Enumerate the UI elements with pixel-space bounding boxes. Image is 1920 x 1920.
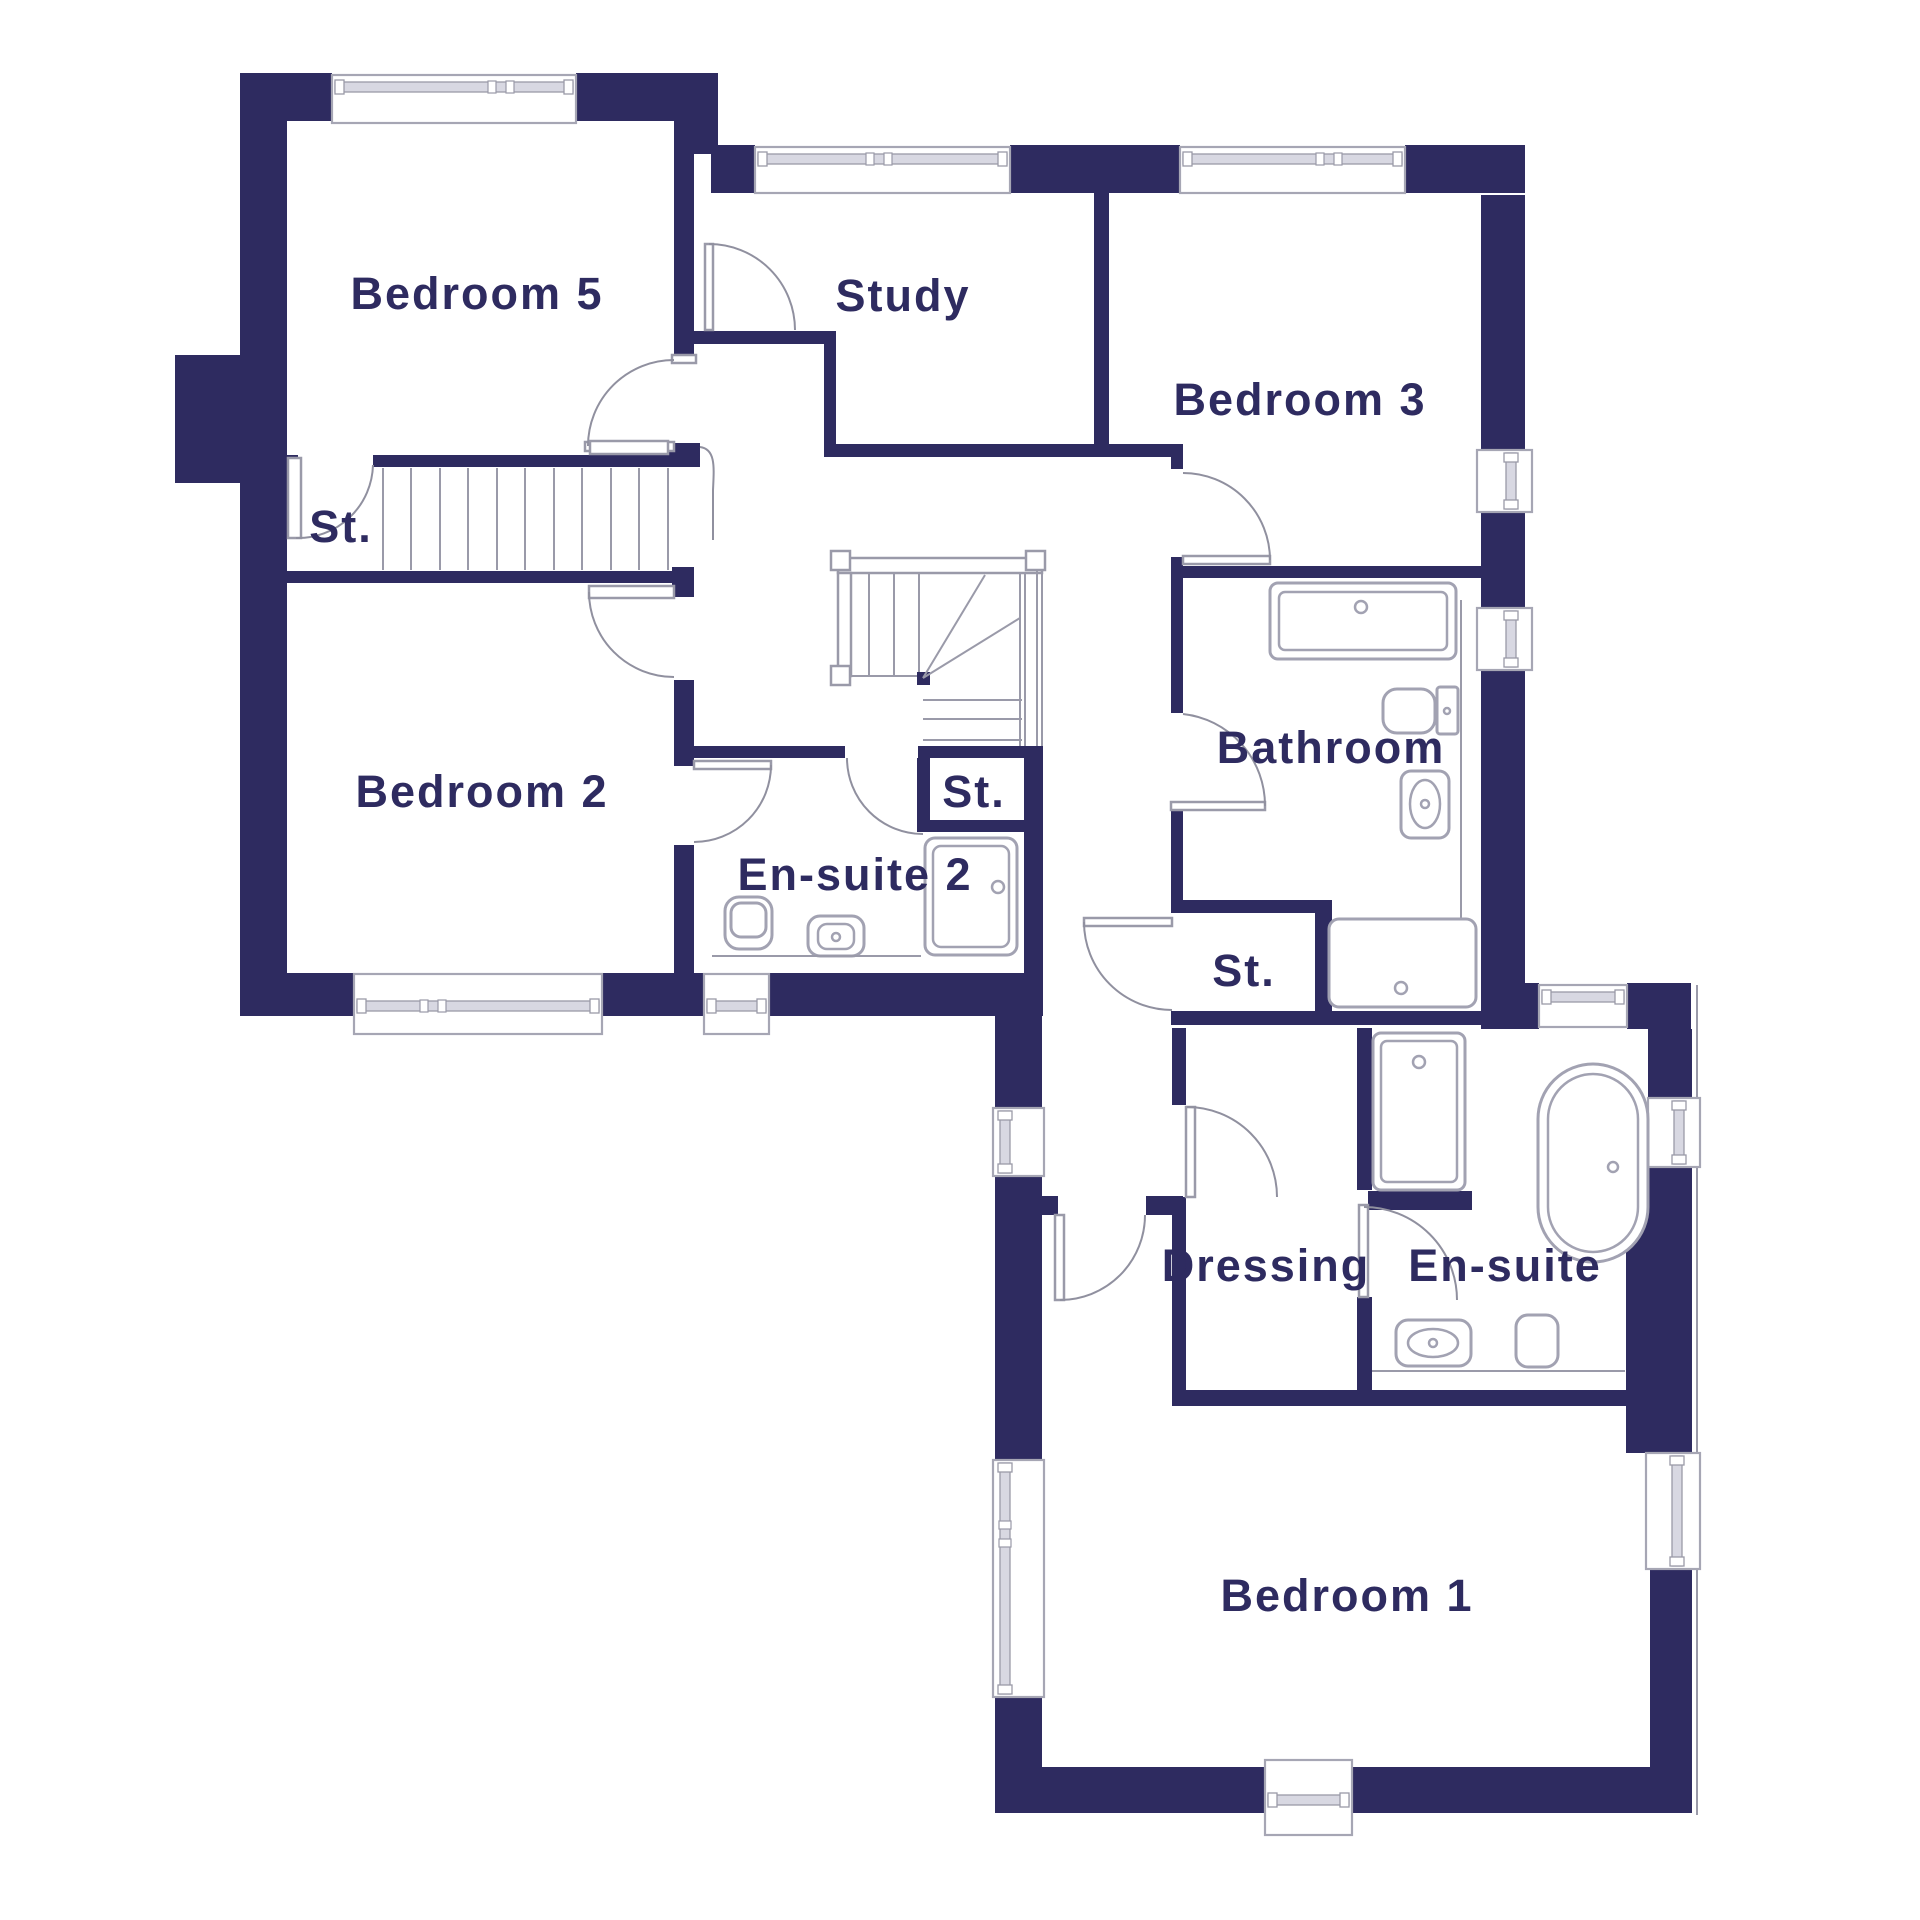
- svg-text:St.: St.: [942, 766, 1006, 817]
- svg-text:Study: Study: [835, 270, 970, 321]
- svg-text:St.: St.: [309, 501, 373, 552]
- svg-text:En-suite: En-suite: [1408, 1240, 1602, 1291]
- svg-text:Dressing: Dressing: [1162, 1240, 1371, 1291]
- svg-text:En-suite 2: En-suite 2: [737, 849, 972, 900]
- svg-text:Bathroom: Bathroom: [1217, 722, 1446, 773]
- svg-text:Bedroom 5: Bedroom 5: [350, 268, 603, 319]
- svg-text:Bedroom 3: Bedroom 3: [1173, 374, 1426, 425]
- svg-text:St.: St.: [1212, 945, 1276, 996]
- svg-text:Bedroom 2: Bedroom 2: [355, 766, 608, 817]
- svg-text:Bedroom 1: Bedroom 1: [1220, 1570, 1473, 1621]
